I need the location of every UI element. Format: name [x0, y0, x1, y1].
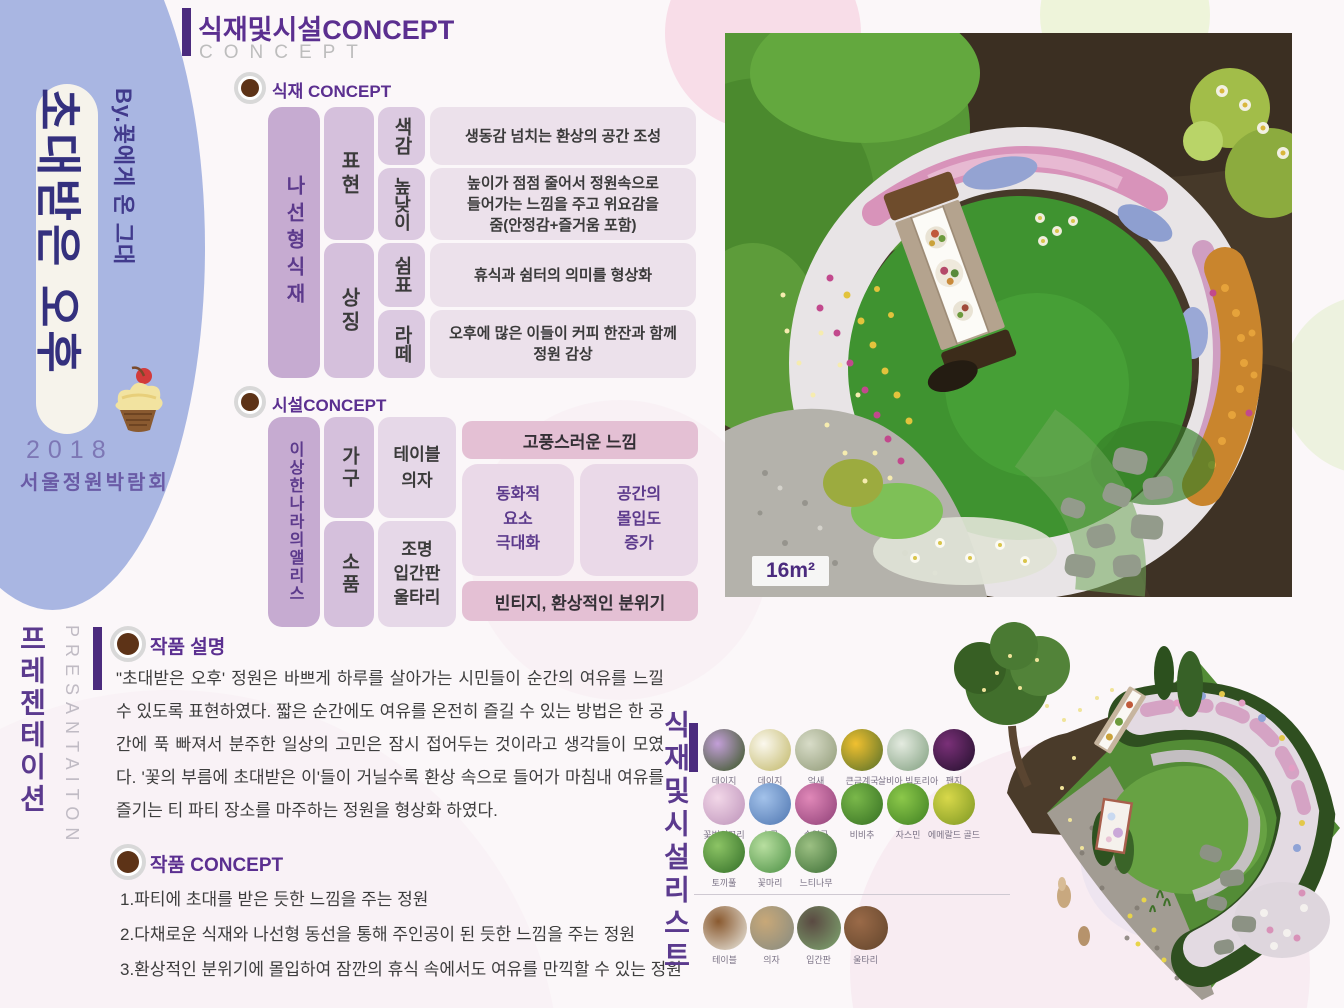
expo-year: 2018: [26, 436, 114, 465]
presentation-vertical-label: 프레젠테이션: [11, 624, 51, 816]
planting-key-cell: 쉼표: [378, 243, 425, 307]
header-accent-bar: [182, 8, 191, 56]
spec-photo: [797, 906, 841, 950]
garden-3d-render-image: [952, 598, 1344, 1008]
spec-photo: [841, 729, 883, 771]
planting-desc-cell: 생동감 넘치는 환상의 공간 조성: [430, 107, 696, 165]
planting-key-cell: 색감: [378, 107, 425, 165]
spec-item: 의자: [748, 906, 795, 966]
planting-concept-heading: 식재 CONCEPT: [272, 77, 391, 102]
garden-title: 초대받은 오후: [34, 88, 94, 433]
list-divider: [694, 894, 1010, 895]
facility-concept-heading: 시설CONCEPT: [272, 391, 386, 416]
spec-label: 비비추: [850, 828, 875, 841]
key-label: 라떼: [388, 325, 415, 363]
facility-items-cell: 조명입간판울타리: [378, 521, 456, 627]
facility-effect-box: 공간의몰입도증가: [580, 464, 698, 576]
planting-key-cell: 높낮이: [378, 168, 425, 240]
spec-photo: [703, 783, 745, 825]
spec-photo: [795, 831, 837, 873]
coffee-cup-icon: [110, 844, 146, 880]
presentation-accent-bar: [93, 627, 102, 690]
facility-root-label: 이상한나라의앨리스: [282, 441, 306, 603]
spec-item: 데이지: [747, 729, 793, 787]
facility-items-cell: 테이블의자: [378, 417, 456, 518]
work-concept-list: 1.파티에 초대를 받은 듯한 느낌을 주는 정원2.다채로운 식재와 나선형 …: [120, 882, 682, 987]
spec-item: 울타리: [842, 906, 889, 966]
brand-ellipse: [0, 0, 205, 610]
spec-label: 자스민: [896, 828, 921, 841]
furniture-row: 테이블의자입간판울타리: [701, 906, 889, 966]
plan-area-label: 16m²: [752, 556, 829, 586]
expo-name: 서울정원박람회: [20, 466, 170, 495]
planting-group-cell: 상징: [324, 243, 374, 378]
spec-item: 비비추: [839, 783, 885, 841]
planting-group-cell: 표현: [324, 107, 374, 240]
spec-photo: [933, 729, 975, 771]
spec-photo: [844, 906, 888, 950]
spec-item: 살비아 빅토리아: [885, 729, 931, 787]
planting-root-cell: 나선형식재: [268, 107, 320, 378]
spec-item: 데이지: [701, 729, 747, 787]
presentation-board: 초대받은 오후 By.꽃에게 온 그대 2018 서울정원박람회 식재및시설CO…: [0, 0, 1344, 1008]
spec-item: 꽃마리: [747, 831, 793, 889]
facility-effect-box: 동화적요소극대화: [462, 464, 574, 576]
coffee-cup-icon: [110, 626, 146, 662]
spec-label: 입간판: [806, 953, 831, 966]
group-label: 가구: [336, 446, 363, 490]
group-label: 상징: [335, 287, 364, 335]
planting-key-cell: 라떼: [378, 310, 425, 378]
presentation-vertical-english: PRESANTAITON: [58, 625, 82, 840]
group-label: 소품: [336, 552, 363, 596]
plant-row: 데이지데이지억새큰금계국살비아 빅토리아팬지: [701, 729, 977, 787]
spec-photo: [841, 783, 883, 825]
spec-item: 자스민: [885, 783, 931, 841]
planting-desc-cell: 오후에 많은 이들이 커피 한잔과 함께정원 감상: [430, 310, 696, 378]
spec-item: 입간판: [795, 906, 842, 966]
spec-photo: [703, 729, 745, 771]
coffee-cup-icon: [234, 386, 266, 418]
key-label: 높낮이: [389, 177, 415, 231]
spec-label: 테이블: [712, 953, 737, 966]
key-label: 색감: [388, 117, 415, 155]
spec-photo: [703, 906, 747, 950]
description-paragraph: "초대받은 오후' 정원은 바쁘게 하루를 살아가는 시민들이 순간의 여유를 …: [116, 662, 664, 827]
spec-item: 느티나무: [793, 831, 839, 889]
spec-label: 느티나무: [799, 876, 832, 889]
spec-photo: [749, 729, 791, 771]
spec-item: 테이블: [701, 906, 748, 966]
key-label: 쉼표: [388, 256, 415, 294]
facility-banner-top: 고풍스러운 느낌: [462, 421, 698, 459]
facility-group-cell: 소품: [324, 521, 374, 627]
spec-photo: [933, 783, 975, 825]
spec-photo: [795, 783, 837, 825]
garden-byline: By.꽃에게 온 그대: [111, 88, 141, 388]
spec-photo: [887, 729, 929, 771]
coffee-cup-icon: [234, 72, 266, 104]
planting-desc-cell: 휴식과 쉼터의 의미를 형상화: [430, 243, 696, 307]
spec-item: 팬지: [931, 729, 977, 787]
group-label: 표현: [335, 150, 364, 198]
spec-label: 의자: [763, 953, 780, 966]
spec-label: 꽃마리: [758, 876, 783, 889]
spec-item: 에메랄드 골드: [931, 783, 977, 841]
spec-photo: [749, 831, 791, 873]
planting-root-label: 나선형식재: [280, 175, 309, 310]
spec-item: 억새: [793, 729, 839, 787]
spec-photo: [795, 729, 837, 771]
spec-label: 토끼풀: [712, 876, 737, 889]
list-accent-bar: [689, 723, 698, 772]
spec-photo: [703, 831, 745, 873]
page-subtitle: CONCEPT: [199, 42, 369, 64]
spec-item: 토끼풀: [701, 831, 747, 889]
spec-photo: [887, 783, 929, 825]
facility-banner-bottom: 빈티지, 환상적인 분위기: [462, 581, 698, 621]
concept-line: 2.다채로운 식재와 나선형 동선을 통해 주인공이 된 듯한 느낌을 주는 정…: [120, 917, 682, 952]
spec-label: 울타리: [853, 953, 878, 966]
spec-photo: [749, 783, 791, 825]
cupcake-icon: [106, 364, 170, 434]
garden-plan-image: [725, 33, 1292, 597]
work-concept-heading: 작품 CONCEPT: [150, 850, 283, 877]
description-heading: 작품 설명: [150, 632, 225, 659]
facility-root-cell: 이상한나라의앨리스: [268, 417, 320, 627]
plant-row: 토끼풀꽃마리느티나무: [701, 831, 839, 889]
concept-line: 1.파티에 초대를 받은 듯한 느낌을 주는 정원: [120, 882, 682, 917]
planting-desc-cell: 높이가 점점 줄어서 정원속으로들어가는 느낌을 주고 위요감을줌(안정감+즐거…: [430, 168, 696, 240]
facility-group-cell: 가구: [324, 417, 374, 518]
spec-label: 에메랄드 골드: [928, 828, 980, 841]
spec-photo: [750, 906, 794, 950]
concept-line: 3.환상적인 분위기에 몰입하여 잠깐의 휴식 속에서도 여유를 만끽할 수 있…: [120, 952, 682, 987]
